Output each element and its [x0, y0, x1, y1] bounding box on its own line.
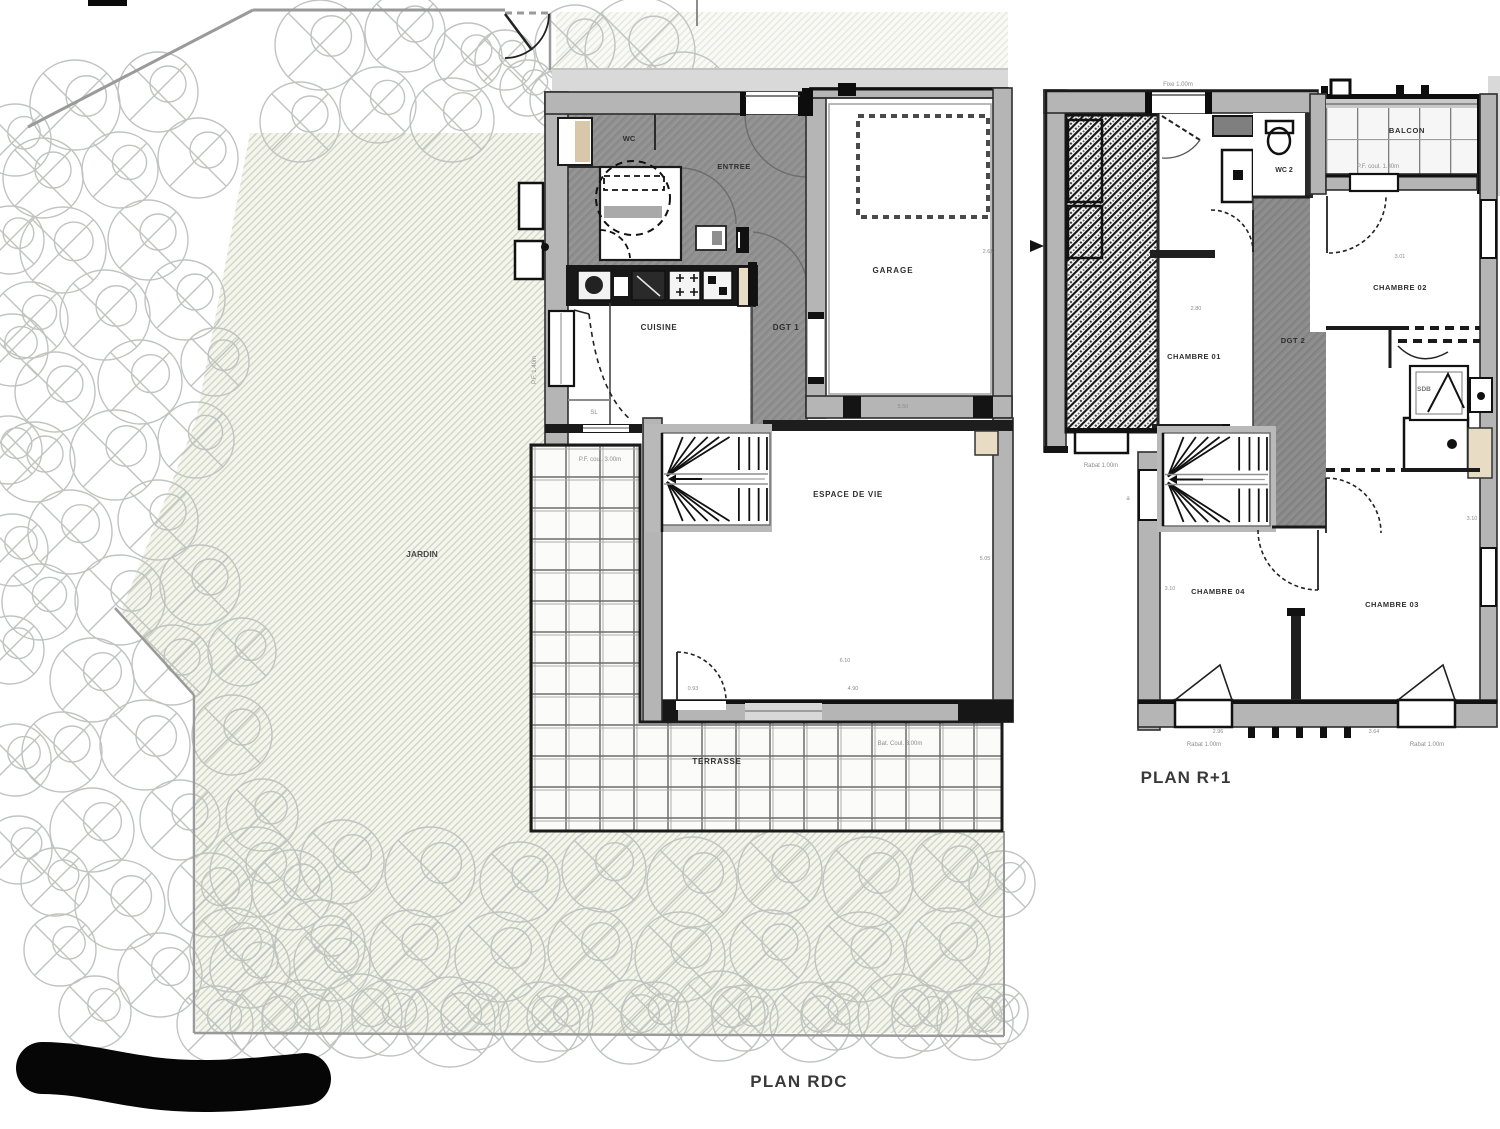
svg-text:2.61: 2.61 — [983, 249, 994, 255]
svg-text:CHAMBRE 03: CHAMBRE 03 — [1365, 600, 1419, 609]
svg-text:2.80: 2.80 — [1191, 306, 1202, 312]
svg-text:P.F. coul. 1.80m: P.F. coul. 1.80m — [1357, 164, 1399, 170]
svg-text:3.64: 3.64 — [1369, 729, 1380, 735]
svg-text:Rabat 1.00m: Rabat 1.00m — [1410, 742, 1444, 748]
svg-text:3.01: 3.01 — [1395, 254, 1406, 260]
svg-text:WC: WC — [623, 134, 636, 143]
svg-text:JARDIN: JARDIN — [406, 549, 438, 559]
svg-text:CHAMBRE 04: CHAMBRE 04 — [1191, 587, 1245, 596]
svg-text:4.90: 4.90 — [848, 686, 859, 692]
svg-text:CHAMBRE 01: CHAMBRE 01 — [1167, 352, 1221, 361]
svg-text:Rabat 1.00m: Rabat 1.00m — [1187, 742, 1221, 748]
svg-text:2.96: 2.96 — [1213, 729, 1224, 735]
svg-text:SL: SL — [590, 410, 598, 416]
svg-text:CHAMBRE 02: CHAMBRE 02 — [1373, 283, 1427, 292]
svg-text:ENTREE: ENTREE — [717, 162, 750, 171]
svg-text:0.93: 0.93 — [688, 686, 699, 692]
svg-text:CUISINE: CUISINE — [641, 323, 678, 332]
svg-text:PLAN RDC: PLAN RDC — [750, 1072, 847, 1091]
svg-text:3.10: 3.10 — [1467, 516, 1478, 522]
svg-text:5.50: 5.50 — [898, 404, 909, 410]
svg-text:Fixe 1.00m: Fixe 1.00m — [1163, 82, 1193, 88]
svg-text:PLAN R+1: PLAN R+1 — [1141, 768, 1232, 787]
svg-text:DGT 1: DGT 1 — [773, 323, 800, 332]
svg-text:DGT 2: DGT 2 — [1281, 336, 1306, 345]
svg-text:Rabat 1.00m: Rabat 1.00m — [1084, 463, 1118, 469]
svg-text:BALCON: BALCON — [1389, 126, 1425, 135]
svg-text:GARAGE: GARAGE — [872, 266, 913, 275]
svg-text:WC 2: WC 2 — [1275, 167, 1293, 174]
svg-text:5.05: 5.05 — [980, 556, 991, 562]
svg-text:6.10: 6.10 — [840, 658, 851, 664]
svg-text:TERRASSE: TERRASSE — [692, 757, 741, 766]
svg-text:P.F. coul. 3.00m: P.F. coul. 3.00m — [579, 457, 621, 463]
svg-text:3.10: 3.10 — [1165, 586, 1176, 592]
svg-text:Bat. Coul. 3.00m: Bat. Coul. 3.00m — [878, 741, 923, 747]
svg-text:SDB: SDB — [1417, 386, 1431, 393]
svg-text:P.F. 1.40m: P.F. 1.40m — [532, 356, 538, 384]
svg-text:ESPACE DE VIE: ESPACE DE VIE — [813, 490, 883, 499]
svg-text:a: a — [1126, 496, 1130, 502]
